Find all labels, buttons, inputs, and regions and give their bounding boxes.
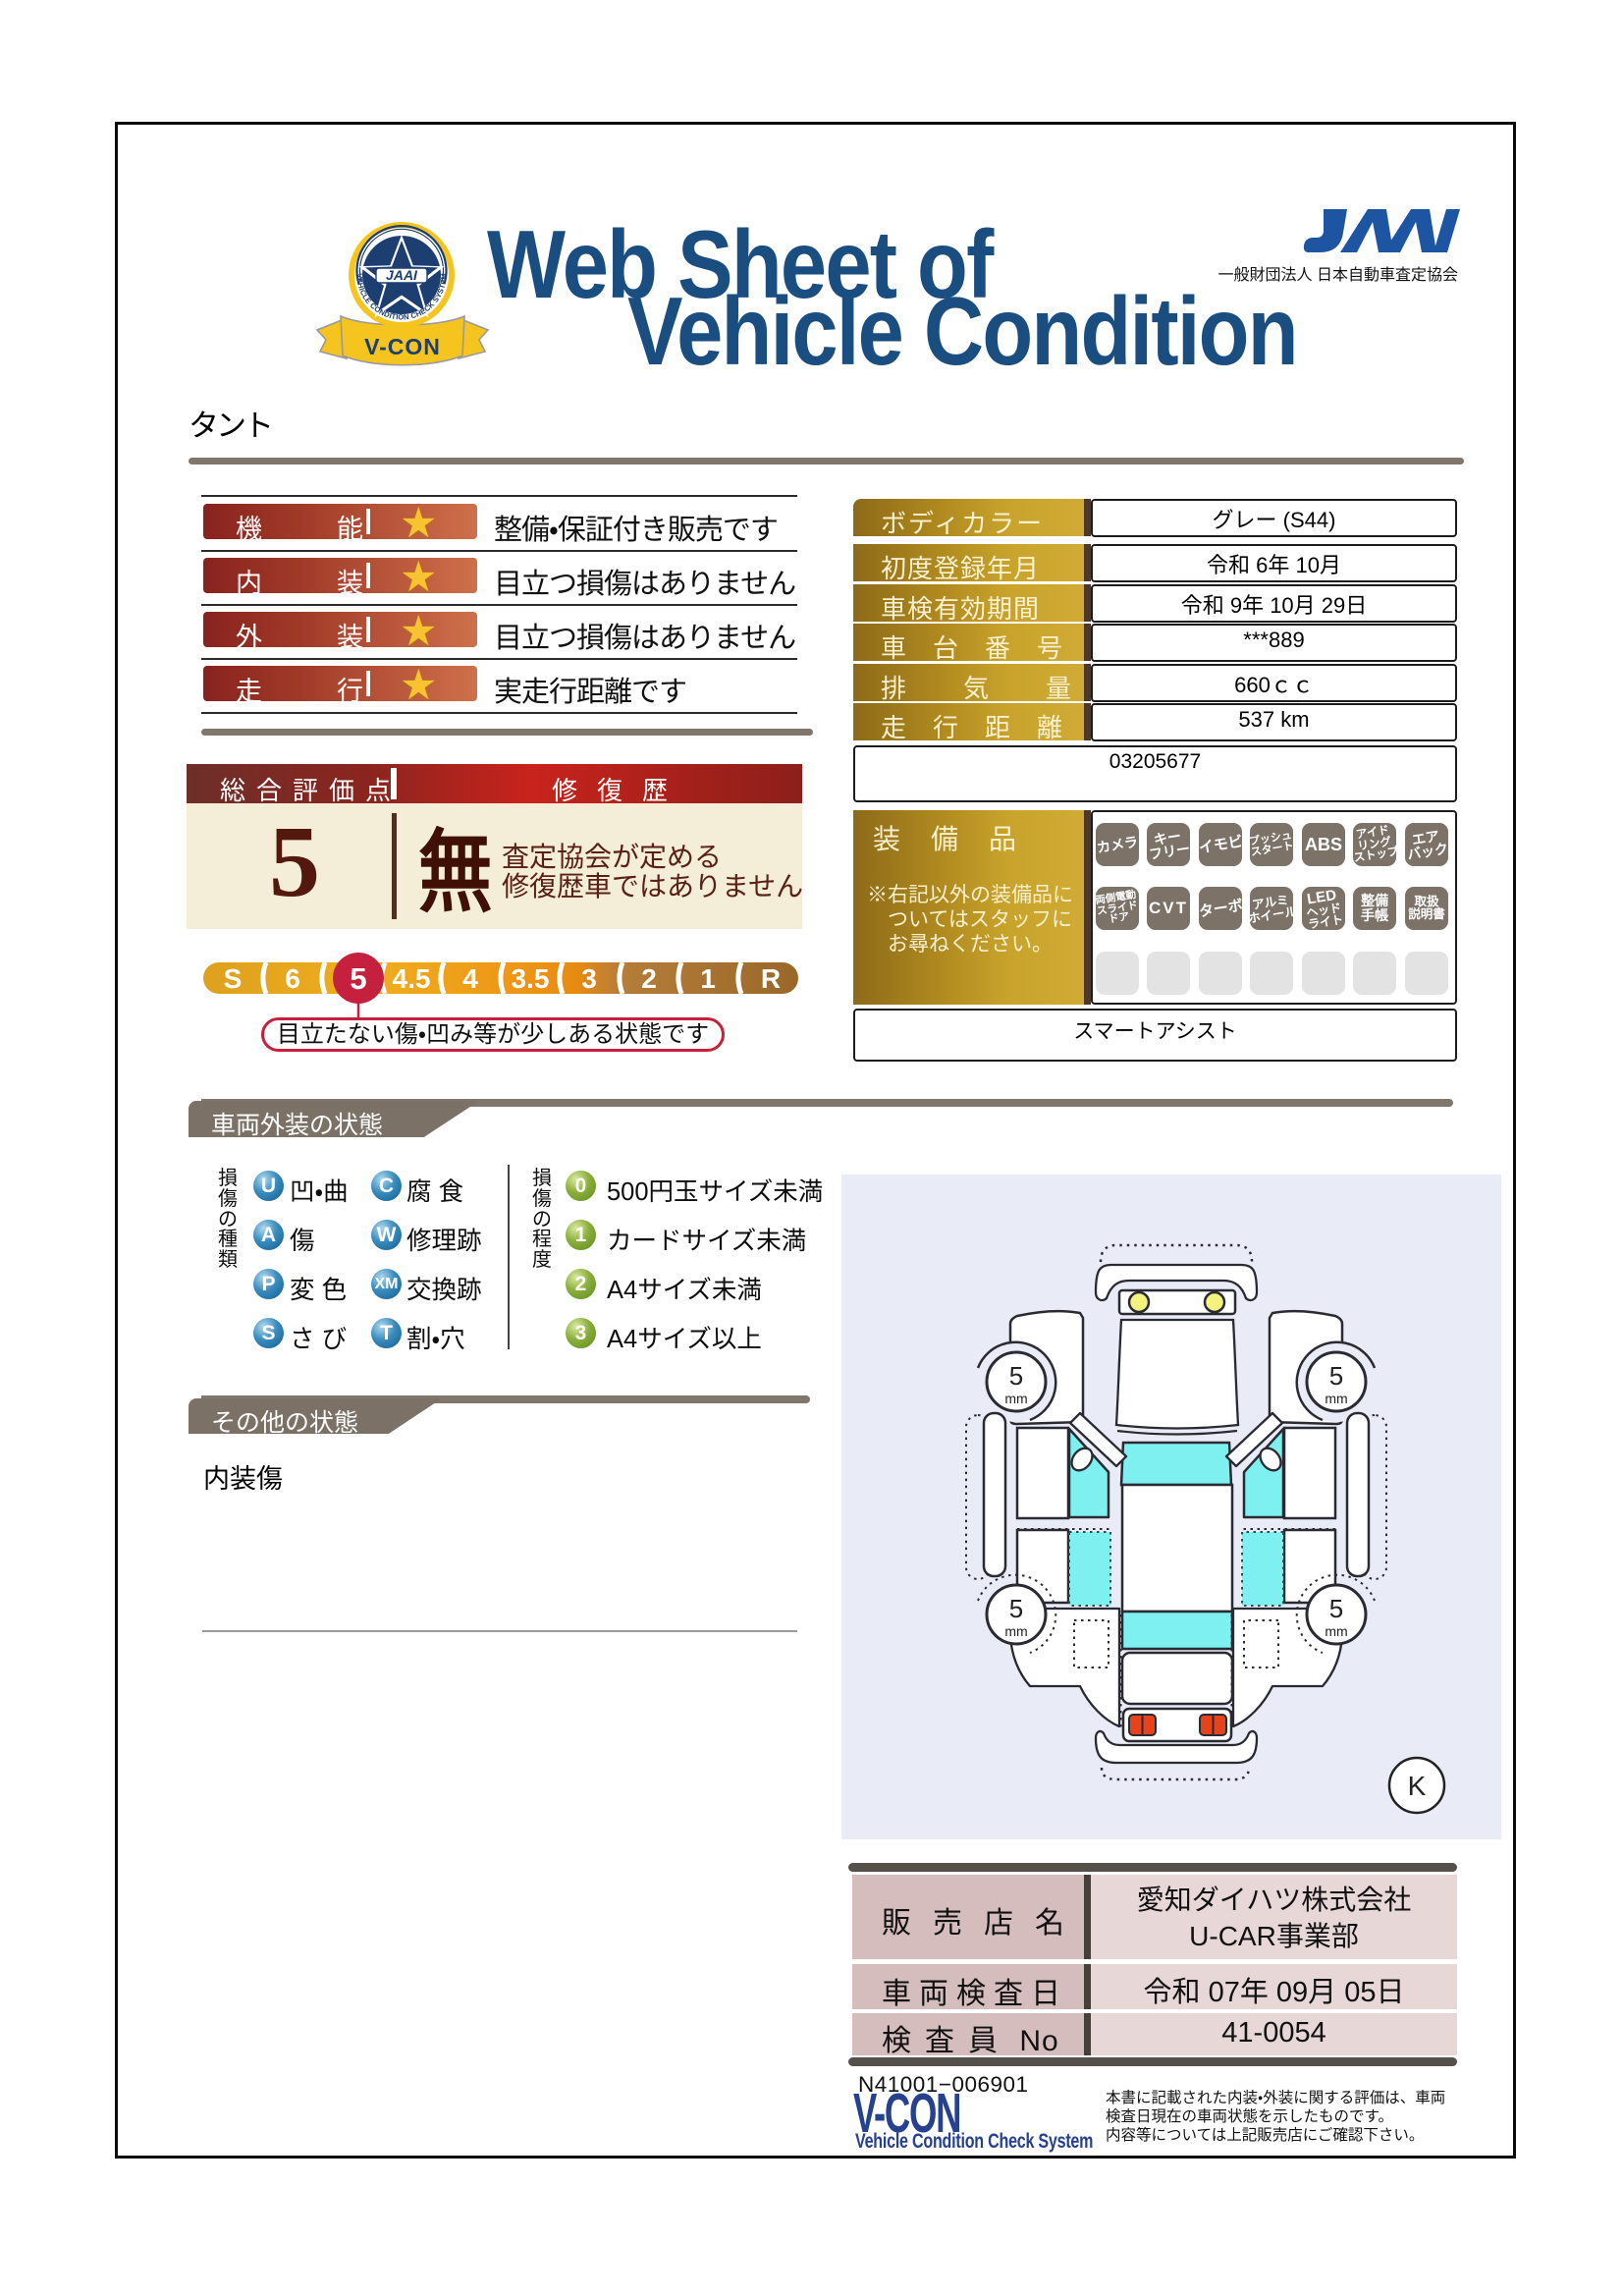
svg-text:R: R [761,963,781,994]
svg-text:5: 5 [1009,1361,1023,1391]
svg-text:4: 4 [462,963,478,994]
svg-text:4.5: 4.5 [393,963,431,994]
svg-text:K: K [1408,1771,1427,1801]
svg-text:5: 5 [1009,1594,1023,1623]
svg-text:V-CON: V-CON [364,334,441,359]
svg-text:mm: mm [1004,1391,1027,1406]
svg-text:3.5: 3.5 [512,963,550,994]
svg-text:JAAI: JAAI [386,267,418,283]
svg-text:mm: mm [1325,1391,1347,1406]
svg-text:S: S [224,963,243,994]
svg-text:mm: mm [1004,1623,1027,1639]
svg-text:5: 5 [1329,1361,1343,1391]
svg-text:6: 6 [285,963,300,994]
svg-text:5: 5 [350,961,366,996]
svg-text:mm: mm [1325,1623,1347,1639]
svg-text:2: 2 [641,963,657,994]
svg-text:5: 5 [1329,1594,1343,1623]
svg-text:1: 1 [700,963,716,994]
svg-text:3: 3 [581,963,597,994]
